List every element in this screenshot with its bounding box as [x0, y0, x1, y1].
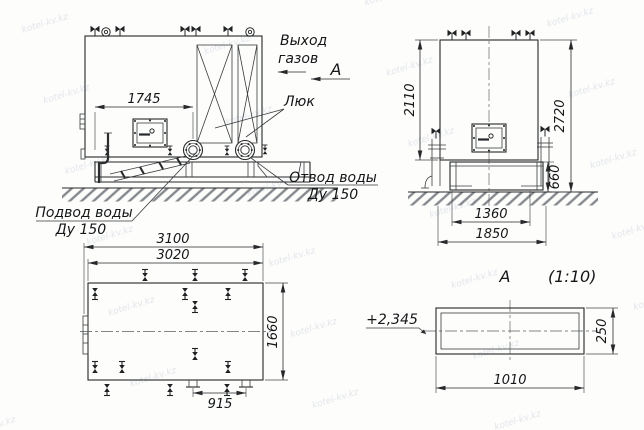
- water-outlet-flange: [236, 141, 255, 160]
- svg-text:660: 660: [548, 165, 563, 190]
- svg-text:1360: 1360: [474, 207, 507, 222]
- svg-text:Подвод воды: Подвод воды: [35, 205, 132, 221]
- svg-text:+2,345: +2,345: [366, 312, 418, 328]
- svg-text:3020: 3020: [156, 248, 189, 263]
- detail-scale: (1:10): [548, 267, 596, 286]
- svg-text:1660: 1660: [266, 315, 281, 348]
- svg-text:Люк: Люк: [283, 94, 315, 110]
- svg-text:Выход: Выход: [280, 33, 327, 49]
- inspection-hatch-door: [133, 119, 167, 147]
- inspection-hatch-door: [472, 124, 506, 152]
- technical-drawing-canvas: kotel-kv.kz: [0, 0, 644, 430]
- svg-text:А: А: [330, 60, 342, 79]
- svg-text:2110: 2110: [403, 83, 418, 116]
- svg-text:Ду 150: Ду 150: [307, 187, 358, 203]
- ground-hatch: [408, 193, 598, 206]
- svg-text:1850: 1850: [475, 227, 508, 242]
- svg-text:915: 915: [208, 397, 233, 412]
- svg-text:газов: газов: [278, 51, 318, 67]
- ground-hatch: [62, 189, 338, 202]
- svg-text:Ду 150: Ду 150: [55, 222, 106, 238]
- svg-text:Отвод воды: Отвод воды: [289, 170, 377, 186]
- dim-text-1745: 1745: [127, 92, 160, 107]
- detail-title: А: [499, 267, 511, 286]
- svg-text:250: 250: [595, 319, 610, 344]
- svg-text:2720: 2720: [553, 99, 568, 132]
- svg-text:1010: 1010: [493, 373, 526, 388]
- svg-text:3100: 3100: [156, 232, 189, 247]
